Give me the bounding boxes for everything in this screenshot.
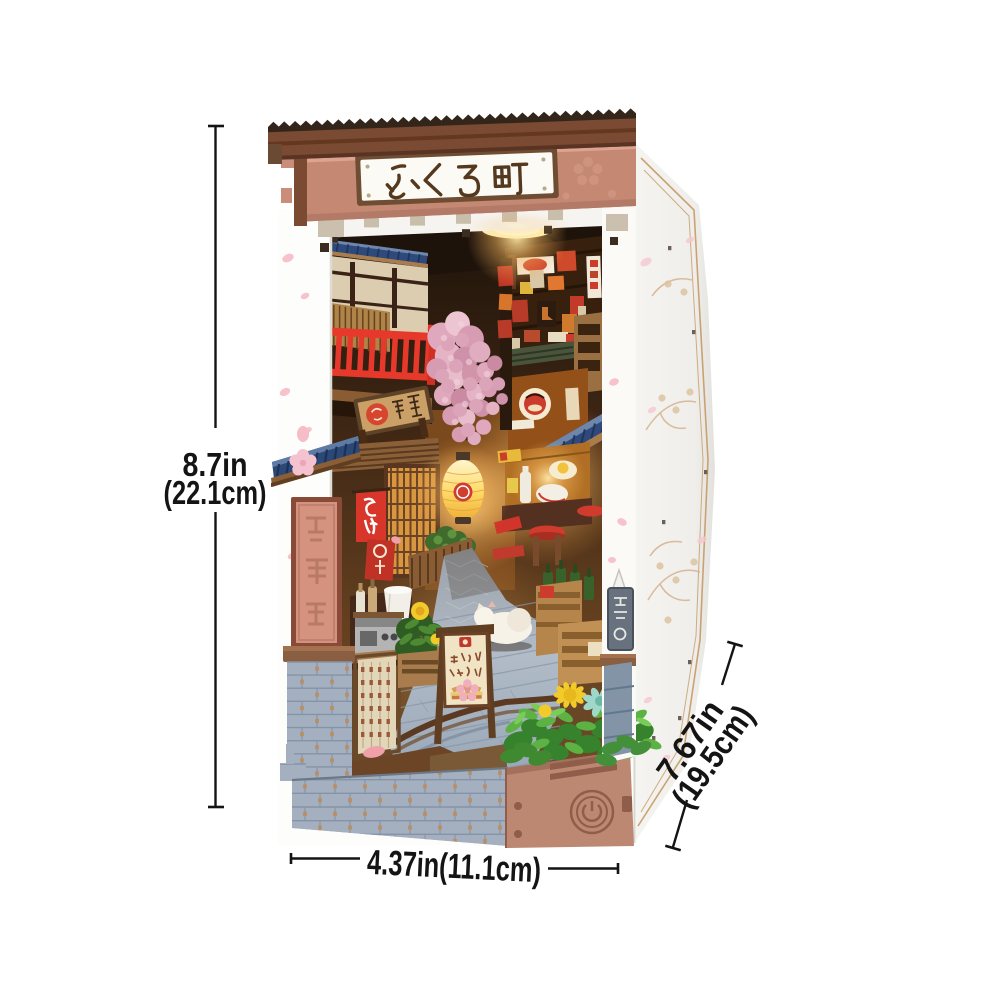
svg-text:(22.1cm): (22.1cm) xyxy=(164,474,267,511)
